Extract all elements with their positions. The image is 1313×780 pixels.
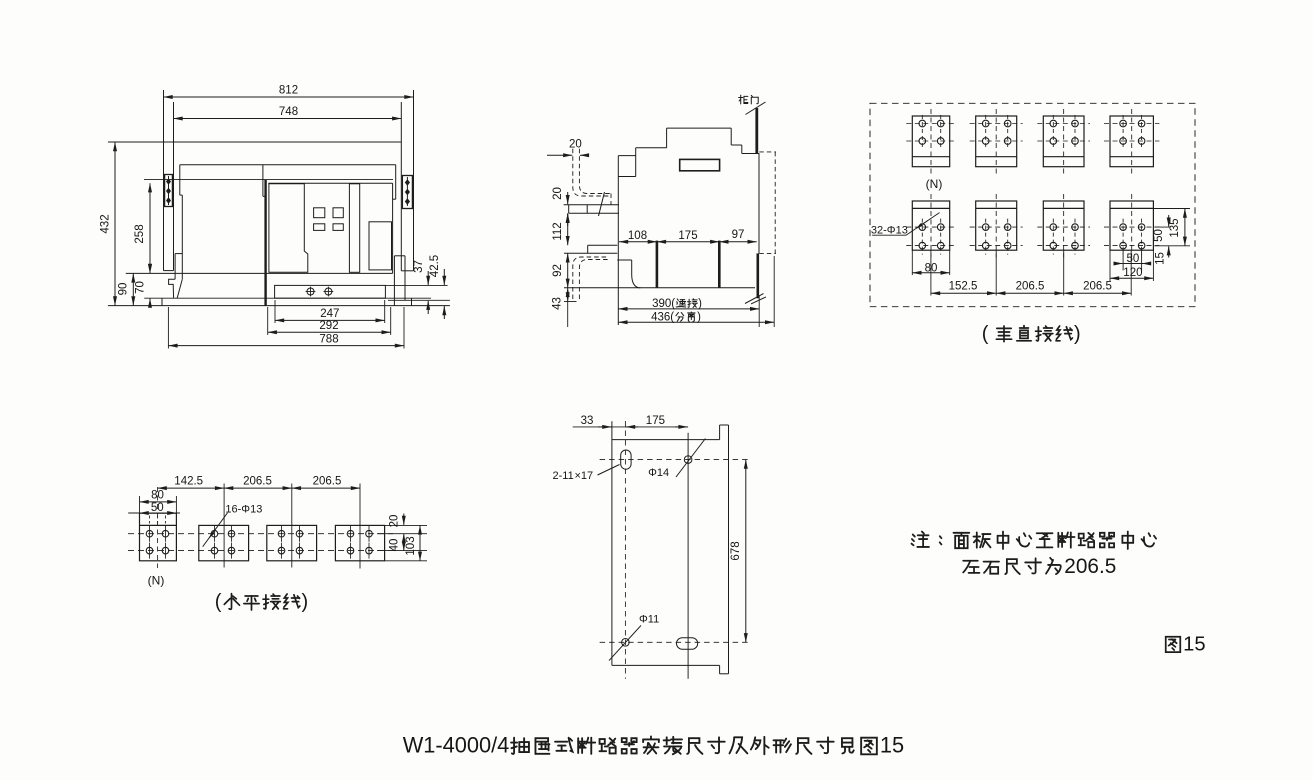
svg-text:92: 92 xyxy=(552,264,564,277)
svg-text:812: 812 xyxy=(279,85,298,97)
svg-text:32-: 32- xyxy=(871,225,887,237)
svg-text:40: 40 xyxy=(389,539,401,552)
svg-text:135: 135 xyxy=(1169,218,1181,237)
svg-text:258: 258 xyxy=(134,224,146,243)
svg-text:37: 37 xyxy=(413,260,425,273)
svg-text:33: 33 xyxy=(581,415,594,427)
svg-text:Φ13: Φ13 xyxy=(241,504,262,516)
svg-text:50: 50 xyxy=(151,502,164,514)
svg-text:17: 17 xyxy=(581,470,593,482)
svg-text:50: 50 xyxy=(1153,229,1165,242)
svg-text:206.5: 206.5 xyxy=(243,476,272,488)
svg-text:206.5: 206.5 xyxy=(313,476,342,488)
svg-text:80: 80 xyxy=(151,490,164,502)
svg-text:15: 15 xyxy=(1183,634,1205,656)
svg-text:2-11: 2-11 xyxy=(553,470,574,482)
svg-text:390(: 390( xyxy=(652,298,675,310)
svg-text:42.5: 42.5 xyxy=(429,255,441,277)
svg-text:70: 70 xyxy=(135,281,147,294)
svg-text:175: 175 xyxy=(678,230,697,242)
svg-text:112: 112 xyxy=(552,222,564,240)
svg-text:292: 292 xyxy=(319,320,338,332)
svg-text:(: ( xyxy=(982,323,989,345)
svg-text:(N): (N) xyxy=(148,574,165,588)
svg-text:20: 20 xyxy=(552,187,564,200)
svg-text:): ) xyxy=(302,591,309,613)
svg-text:103: 103 xyxy=(405,536,417,555)
svg-text:): ) xyxy=(698,298,702,310)
svg-text:175: 175 xyxy=(646,415,665,427)
svg-text:247: 247 xyxy=(320,308,339,320)
svg-text:436(: 436( xyxy=(651,311,674,323)
svg-text:152.5: 152.5 xyxy=(949,281,978,293)
svg-text:788: 788 xyxy=(319,334,338,346)
svg-text:206.5: 206.5 xyxy=(1083,281,1112,293)
svg-text:97: 97 xyxy=(732,229,745,241)
svg-text:): ) xyxy=(697,311,701,323)
svg-text:Φ14: Φ14 xyxy=(648,467,669,479)
svg-text:15: 15 xyxy=(1155,252,1167,265)
svg-text:(N): (N) xyxy=(926,177,943,191)
svg-text:): ) xyxy=(1074,323,1081,345)
svg-text:120: 120 xyxy=(1123,267,1142,279)
svg-text:50: 50 xyxy=(1127,253,1140,265)
svg-text:(: ( xyxy=(215,591,222,613)
svg-text:678: 678 xyxy=(730,541,742,560)
svg-text:20: 20 xyxy=(569,139,582,151)
svg-text:90: 90 xyxy=(118,283,130,296)
svg-text:748: 748 xyxy=(279,106,298,118)
svg-text:W1-4000/4: W1-4000/4 xyxy=(403,733,510,758)
svg-text:20: 20 xyxy=(389,515,401,528)
svg-text:432: 432 xyxy=(100,214,112,233)
svg-text:Φ11: Φ11 xyxy=(639,614,659,626)
svg-text:15: 15 xyxy=(880,733,904,758)
svg-text:108: 108 xyxy=(628,230,647,242)
svg-text:142.5: 142.5 xyxy=(174,476,203,488)
svg-text:206.5: 206.5 xyxy=(1016,281,1045,293)
svg-text:43: 43 xyxy=(552,297,564,310)
svg-text:206.5: 206.5 xyxy=(1064,555,1116,578)
svg-text:16-: 16- xyxy=(225,504,241,516)
svg-text:Φ13: Φ13 xyxy=(887,225,908,237)
